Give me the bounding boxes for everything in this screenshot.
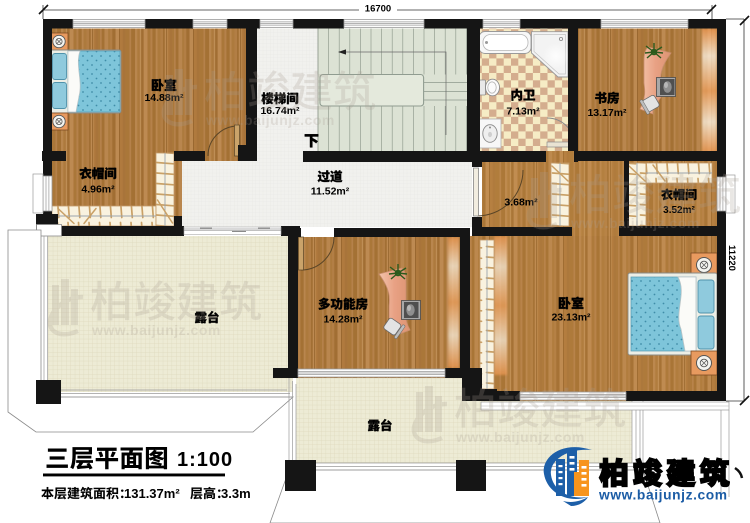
svg-text:3.3m: 3.3m <box>221 486 251 501</box>
svg-text:4.96m²: 4.96m² <box>81 184 115 196</box>
svg-text:11220: 11220 <box>726 245 737 271</box>
svg-text:www.baijunjz.com: www.baijunjz.com <box>91 322 221 338</box>
svg-text:23.13m²: 23.13m² <box>551 312 591 324</box>
svg-text:www.baijunjz.com: www.baijunjz.com <box>455 429 585 445</box>
svg-text:1:100: 1:100 <box>177 449 233 471</box>
svg-text:16700: 16700 <box>365 4 391 15</box>
svg-text:www.baijunjz.com: www.baijunjz.com <box>598 488 728 503</box>
svg-text:7.13m²: 7.13m² <box>506 106 540 118</box>
svg-text:131.37m²: 131.37m² <box>124 486 180 501</box>
svg-text:14.28m²: 14.28m² <box>323 314 363 326</box>
svg-text:11.52m²: 11.52m² <box>311 186 350 198</box>
svg-text:www.baijunjz.com: www.baijunjz.com <box>570 215 700 231</box>
svg-text:www.baijunjz.com: www.baijunjz.com <box>205 112 335 128</box>
svg-text:13.17m²: 13.17m² <box>587 107 627 119</box>
